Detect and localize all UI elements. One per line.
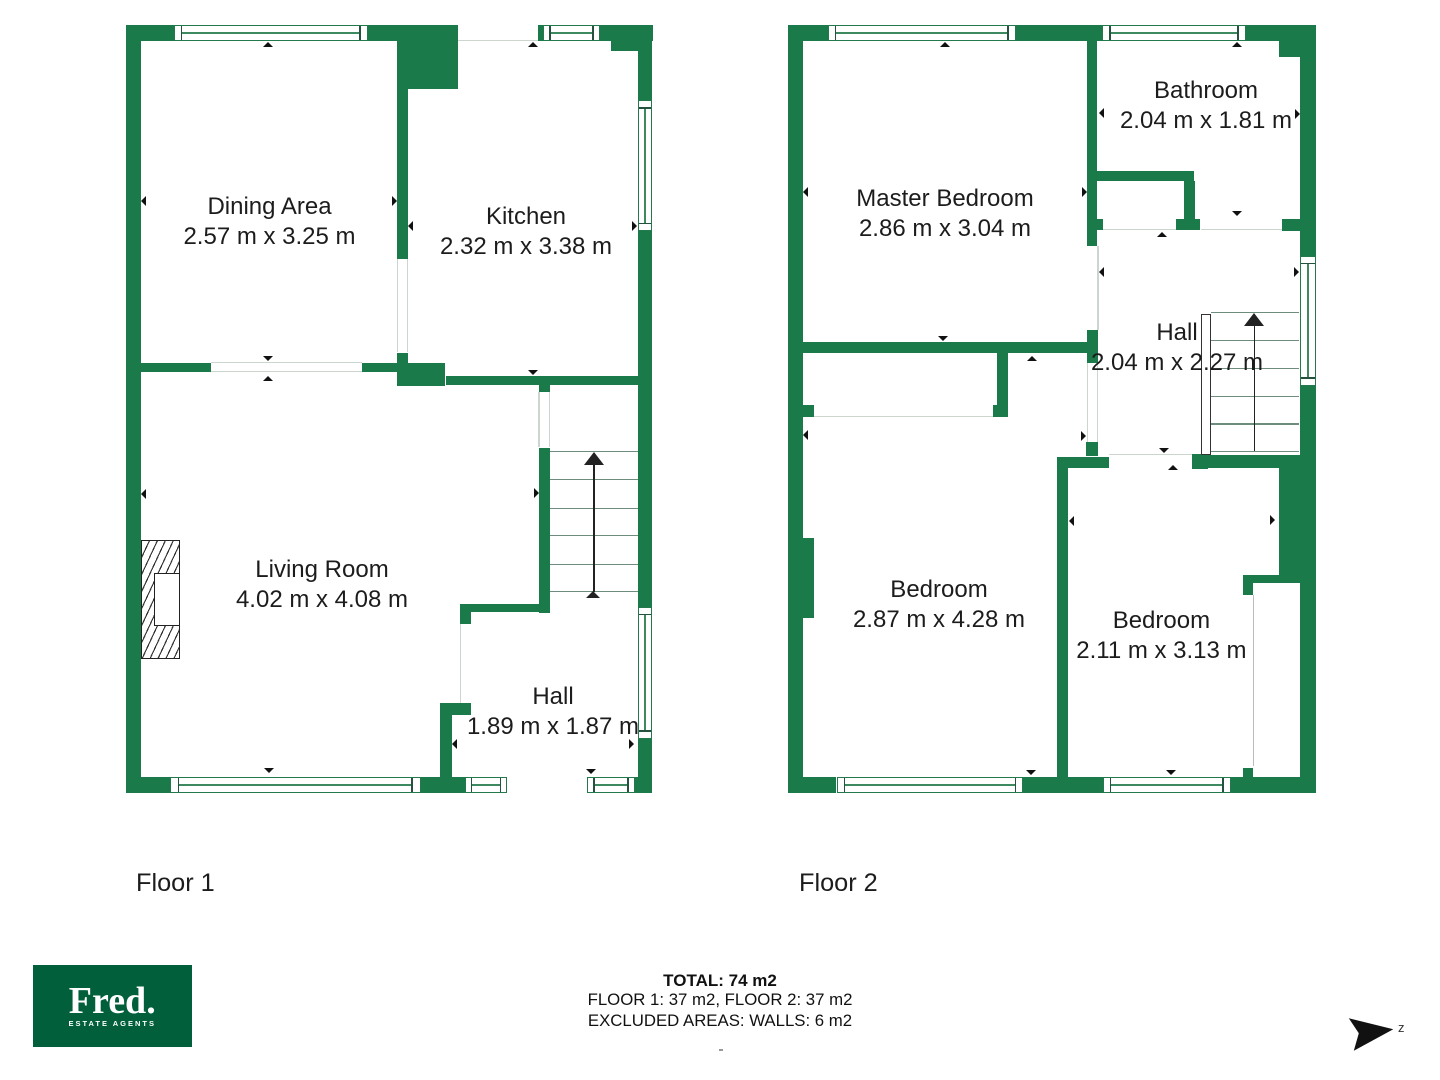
svg-text:z: z (1398, 1020, 1405, 1035)
